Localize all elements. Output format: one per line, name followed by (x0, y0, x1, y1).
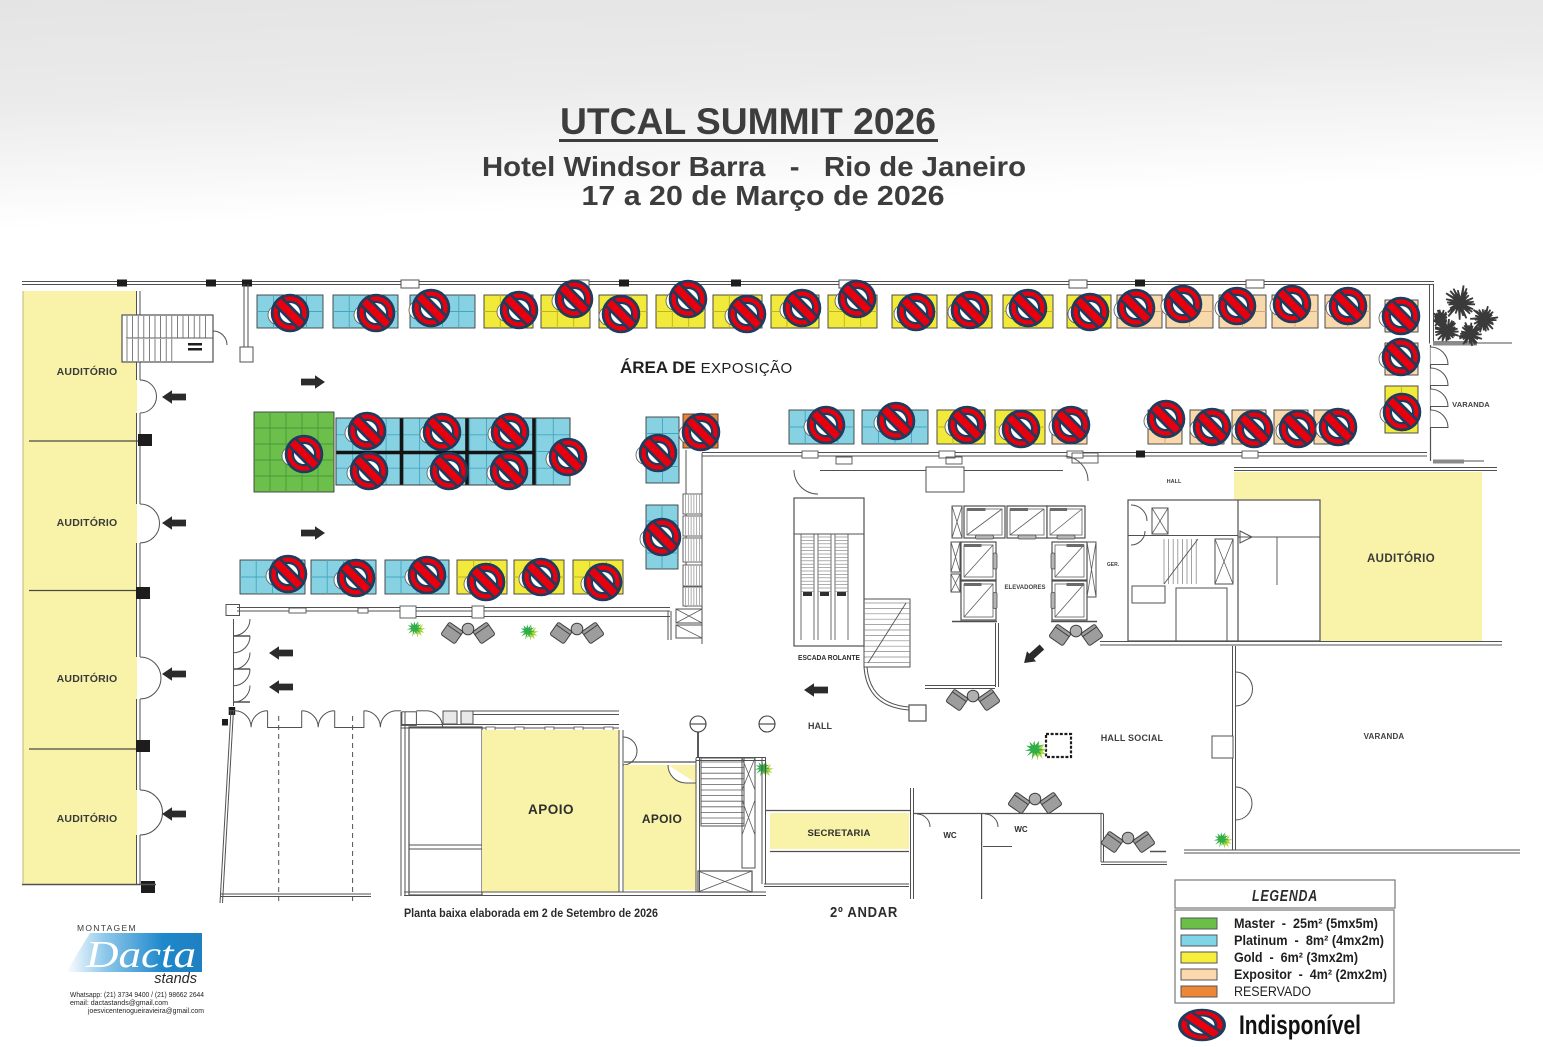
svg-text:joesvicentenogueiravieira@gmai: joesvicentenogueiravieira@gmail.com (87, 1008, 204, 1015)
svg-text:AUDITÓRIO: AUDITÓRIO (57, 365, 118, 378)
svg-text:AUDITÓRIO: AUDITÓRIO (57, 516, 118, 529)
svg-text:APOIO: APOIO (642, 812, 682, 826)
svg-text:ELEVADORES: ELEVADORES (1005, 585, 1046, 591)
svg-text:WC: WC (943, 831, 957, 840)
svg-text:WC: WC (1014, 825, 1028, 834)
svg-text:Master - 25m² (5mx5m): Master - 25m² (5mx5m) (1234, 916, 1378, 931)
svg-text:ÁREA DE EXPOSIÇÃO: ÁREA DE EXPOSIÇÃO (620, 358, 793, 377)
svg-text:VARANDA: VARANDA (1364, 732, 1405, 741)
svg-text:2º ANDAR: 2º ANDAR (830, 905, 898, 921)
svg-text:UTCAL SUMMIT 2026: UTCAL SUMMIT 2026 (560, 101, 936, 142)
svg-text:AUDITÓRIO: AUDITÓRIO (57, 812, 118, 825)
svg-text:Planta baixa elaborada em 2 de: Planta baixa elaborada em 2 de Setembro … (404, 908, 658, 920)
svg-text:APOIO: APOIO (528, 802, 574, 817)
svg-text:Gold - 6m² (3mx2m): Gold - 6m² (3mx2m) (1234, 950, 1358, 965)
svg-text:GER.: GER. (1107, 562, 1120, 568)
svg-text:MONTAGEM: MONTAGEM (77, 923, 137, 933)
svg-text:ESCADA ROLANTE: ESCADA ROLANTE (798, 653, 860, 662)
svg-text:SECRETARIA: SECRETARIA (807, 828, 870, 839)
svg-text:Platinum - 8m² (4mx2m): Platinum - 8m² (4mx2m) (1234, 933, 1384, 948)
svg-text:Whatsapp: (21) 3734 9400 / (21: Whatsapp: (21) 3734 9400 / (21) 98662 26… (70, 992, 204, 999)
svg-text:RESERVADO: RESERVADO (1234, 984, 1311, 999)
svg-text:HALL: HALL (1167, 479, 1182, 485)
svg-text:HALL SOCIAL: HALL SOCIAL (1101, 733, 1164, 743)
svg-text:HALL: HALL (808, 721, 832, 731)
svg-text:Indisponível: Indisponível (1239, 1010, 1361, 1040)
svg-text:VARANDA: VARANDA (1452, 400, 1490, 409)
svg-text:stands: stands (154, 971, 197, 987)
svg-text:email: dactastands@gmail.com: email: dactastands@gmail.com (70, 1000, 168, 1007)
svg-text:Expositor - 4m² (2mx2m): Expositor - 4m² (2mx2m) (1234, 967, 1387, 982)
svg-text:Dacta: Dacta (85, 934, 196, 976)
svg-text:Hotel Windsor Barra - Rio: Hotel Windsor Barra - Rio de Janeiro (482, 151, 1026, 182)
svg-text:AUDITÓRIO: AUDITÓRIO (1367, 552, 1435, 565)
svg-text:17 a 20 de Março de 2026: 17 a 20 de Março de 2026 (582, 180, 945, 211)
svg-text:AUDITÓRIO: AUDITÓRIO (57, 672, 118, 685)
svg-text:LEGENDA: LEGENDA (1252, 888, 1318, 905)
